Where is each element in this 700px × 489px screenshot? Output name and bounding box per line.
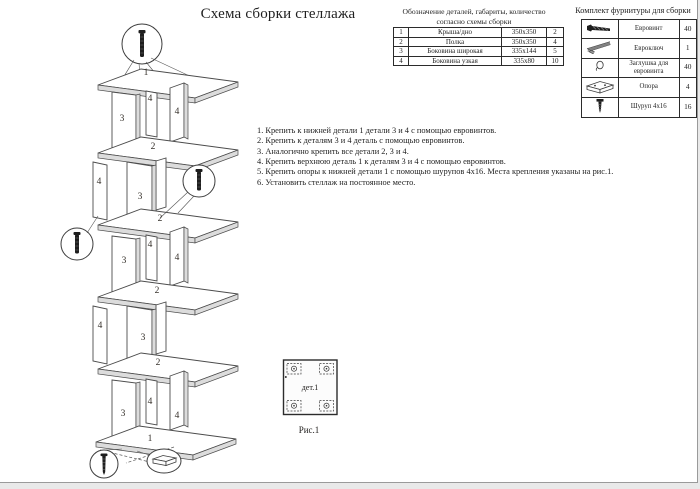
edge-mark: [285, 376, 287, 378]
part-label: 4: [97, 177, 102, 187]
part-label: 1: [148, 434, 153, 444]
part-label: 2: [151, 142, 156, 152]
assembly-diagram: 1 4 4 3 2 4 3 2 4 3 4 2 4 3 2 4 3 4 1: [0, 0, 700, 482]
part-label: 4: [175, 411, 180, 421]
figure1-detail: дет.1 Рис.1: [284, 360, 338, 435]
part-label: 2: [155, 286, 160, 296]
part-label: 4: [175, 107, 180, 117]
screw-callout-bottom: [90, 449, 122, 478]
figure1-caption: Рис.1: [299, 425, 320, 435]
part-label: 4: [98, 321, 103, 331]
part-label: 3: [121, 409, 126, 419]
part-label: 4: [148, 94, 153, 104]
part-label: 2: [158, 214, 163, 224]
part-label: 4: [175, 253, 180, 263]
euro-screw-callout-left: [61, 216, 98, 260]
part-label: 4: [148, 240, 153, 250]
part-label: 3: [120, 114, 125, 124]
part-label: 4: [148, 397, 153, 407]
euro-screw-callout-right: [160, 165, 215, 218]
part-label: 3: [138, 192, 143, 202]
part-label: 3: [122, 256, 127, 266]
part-label: 1: [144, 68, 149, 78]
part-label: 2: [156, 358, 161, 368]
figure1-label: дет.1: [302, 383, 319, 392]
document-page: Схема сборки стеллажа Обозначение детале…: [0, 0, 698, 483]
part-label: 3: [141, 333, 146, 343]
